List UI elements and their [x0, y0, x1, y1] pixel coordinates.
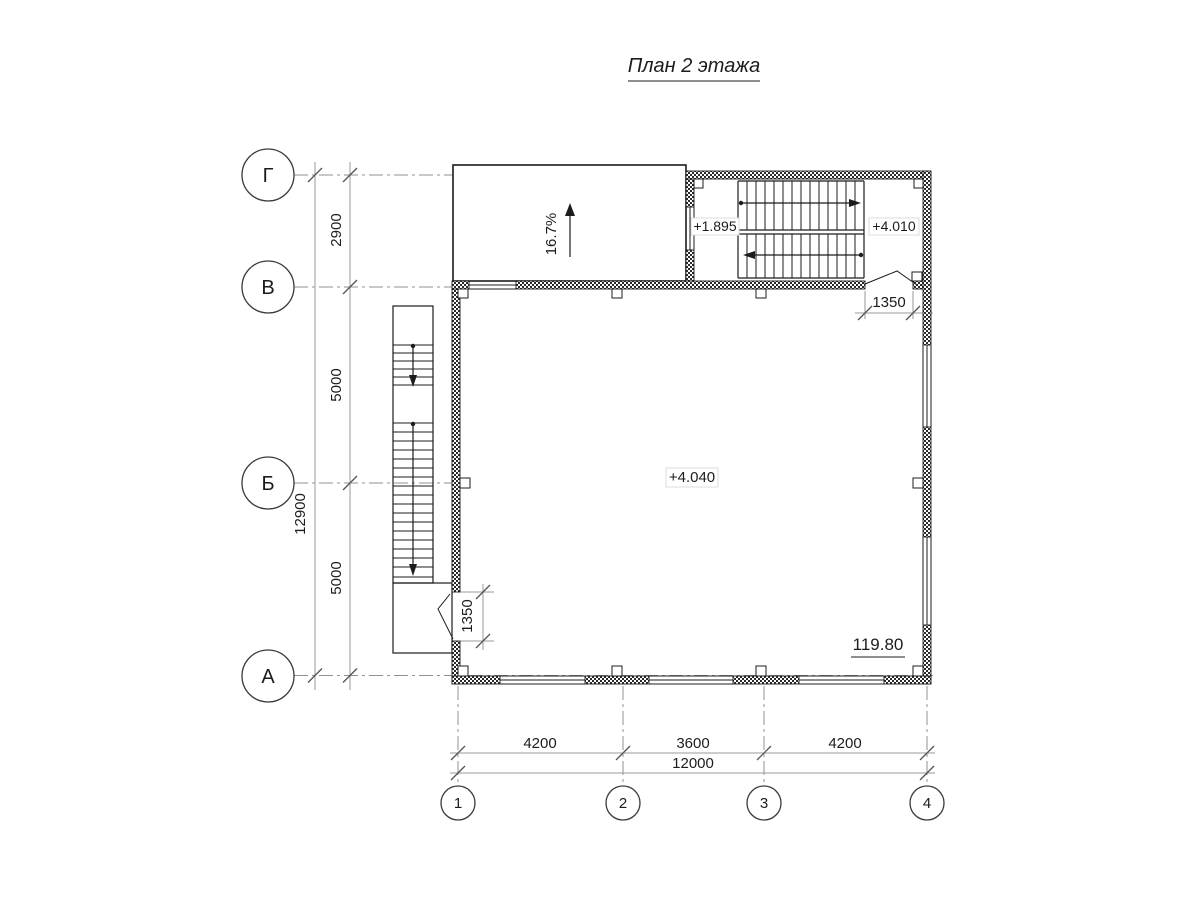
level-stair-mid-landing: +1.895: [693, 218, 736, 234]
col-axis-label: 4: [923, 795, 931, 812]
dim-top-door-width: 1350: [872, 294, 905, 311]
row-axis-label: В: [261, 277, 274, 299]
dim-left-door-width: 1350: [459, 599, 476, 632]
left-stair-outline: [393, 306, 452, 653]
dimension-ticks: [308, 168, 934, 780]
axis-labels: Г В Б А 1 2 3 4: [261, 165, 931, 812]
room-area-value: 119.80: [853, 635, 904, 654]
level-floor: +4.040: [669, 469, 715, 486]
left-exit-door: [438, 594, 453, 639]
dim-left-segment: 2900: [328, 213, 345, 246]
floor-plan-drawing: Г В Б А 1 2 3 4 2900 5000 5000 12900 420…: [0, 0, 1200, 900]
row-axis-label: Б: [261, 473, 274, 495]
level-stair-top-landing: +4.010: [872, 218, 915, 234]
door-swings: [438, 271, 917, 639]
axis-grid-lines: [294, 175, 935, 786]
dim-left-total: 12900: [292, 493, 309, 535]
stair-landing-door: [865, 271, 917, 285]
dim-bottom-total: 12000: [672, 755, 714, 772]
room-area-label: 119.80: [851, 635, 905, 657]
row-axis-bubbles: [242, 149, 294, 702]
dimension-texts: 2900 5000 5000 12900 4200 3600 4200 1200…: [292, 213, 906, 772]
floor-plan-canvas: Г В Б А 1 2 3 4 2900 5000 5000 12900 420…: [0, 0, 1200, 900]
dim-bottom-segment: 4200: [828, 735, 861, 752]
col-axis-bubbles: [441, 786, 944, 820]
row-axis-label: А: [261, 666, 275, 688]
dim-left-segment: 5000: [328, 561, 345, 594]
drawing-title: План 2 этажа: [628, 55, 760, 81]
dim-bottom-segment: 3600: [676, 735, 709, 752]
dim-left-segment: 5000: [328, 368, 345, 401]
ramp-direction-arrow: [565, 203, 575, 257]
row-axis-label: Г: [263, 165, 274, 187]
col-axis-label: 1: [454, 795, 462, 812]
left-stair-down-arrows: [409, 344, 417, 576]
drawing-title-text: План 2 этажа: [628, 55, 760, 77]
ramp-slope-label: 16.7%: [543, 213, 560, 256]
col-axis-label: 2: [619, 795, 627, 812]
dim-bottom-segment: 4200: [523, 735, 556, 752]
walls: [452, 171, 931, 684]
col-axis-label: 3: [760, 795, 768, 812]
